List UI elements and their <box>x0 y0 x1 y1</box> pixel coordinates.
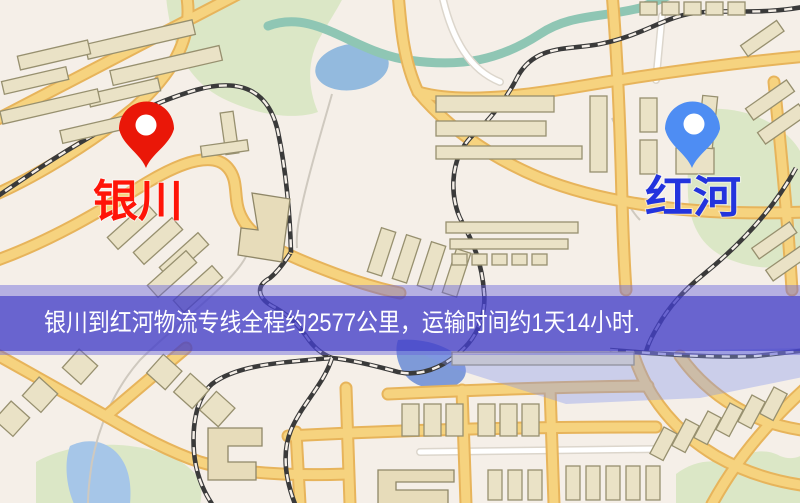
origin-pin-hole <box>136 115 157 136</box>
route-banner: 银川到红河物流专线全程约2577公里，运输时间约1天14小时. <box>0 285 800 355</box>
destination-label: 红河 <box>645 173 741 222</box>
map-screenshot: 银川到红河物流专线全程约2577公里，运输时间约1天14小时. 银川 红河 <box>0 0 800 503</box>
destination-pin-hole <box>684 114 705 135</box>
origin-label: 银川 <box>93 177 183 226</box>
map-canvas: 银川到红河物流专线全程约2577公里，运输时间约1天14小时. 银川 红河 <box>0 0 800 503</box>
route-banner-text: 银川到红河物流专线全程约2577公里，运输时间约1天14小时. <box>44 309 640 337</box>
